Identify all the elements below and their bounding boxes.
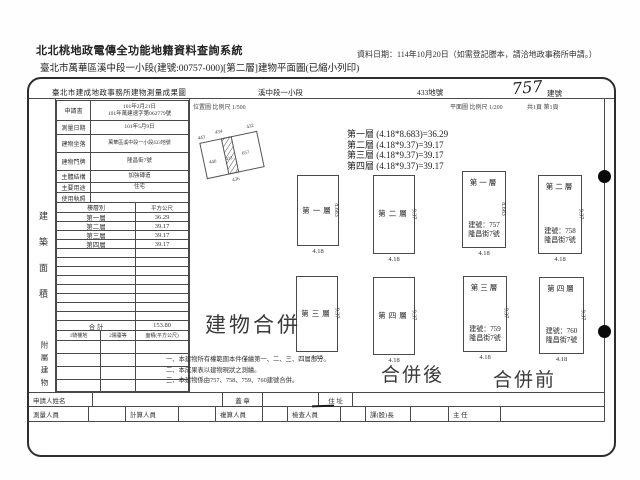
floor-plan-before-760: 第四層 建號：760 隆昌街7號 9.37 4.18 <box>539 277 584 354</box>
data-date-note: 資料日期：114年10月20日（如需登記謄本，請洽地政事務所申請。） <box>357 49 597 60</box>
info-value: 萬華區溪中段一小段433地號 <box>91 135 188 152</box>
plan-side-dim: 8.683 <box>332 203 338 217</box>
floor-name: 第一層 <box>57 213 136 221</box>
floor-row: 第四層 39.17 <box>57 240 188 249</box>
land-section-name: 溪中段一小段 <box>258 87 303 98</box>
area-calculations: 第一層 (4.18*8.683)=36.29 第二層 (4.18*9.37)=3… <box>347 129 448 171</box>
col-floor-header: 樓層別 <box>57 203 136 212</box>
seal-label: 蓋 章 <box>223 393 263 406</box>
plan-address: 隆昌街7號 <box>539 235 581 245</box>
staff-blank <box>89 407 126 421</box>
calc-line: 第三層 (4.18*9.37)=39.17 <box>347 150 448 161</box>
calc-line: 第四層 (4.18*9.37)=39.17 <box>347 161 448 172</box>
document-subtitle: 臺北市萬華區溪中段一小段(建號:00757-000)[第二層]建物平面圖(已縮小… <box>40 60 359 74</box>
floor-row-empty <box>57 303 188 312</box>
sketch-parcel-label: 432 <box>246 124 255 131</box>
annex-col: 面積(平方公尺) <box>136 331 188 340</box>
plan-side-dim: 9.37 <box>410 310 416 321</box>
info-label: 建物門牌 <box>57 153 91 170</box>
floor-name: 第二層 <box>57 222 136 230</box>
info-row: 建物坐落 萬華區溪中段一小段433地號 <box>57 135 188 153</box>
floor-row-empty <box>57 312 188 321</box>
plan-floor-label: 第二層 <box>374 208 414 219</box>
page-count: 共1頁 第1頁 <box>527 102 559 111</box>
staff-blank <box>179 407 216 421</box>
info-row: 主體結構 加強磚造 <box>57 171 188 183</box>
info-value: 隆昌街7號 <box>91 153 188 170</box>
plan-width-dim: 4.18 <box>463 250 505 257</box>
plan-floor-label: 第二層 <box>539 181 581 192</box>
annex-col: 2陽臺等 <box>101 331 136 340</box>
floor-name: 第三層 <box>57 231 136 239</box>
sketch-parcel-label: 436 <box>232 177 241 184</box>
sketch-parcel-label: 443 <box>197 135 206 142</box>
calc-line: 第一層 (4.18*8.683)=36.29 <box>347 129 448 140</box>
sketch-parcel-label: 434 <box>215 129 224 136</box>
floor-row-empty <box>57 249 188 258</box>
annex-col: 1騎樓地 <box>57 331 101 340</box>
info-row: 申請書 101年2月21日 101年萬建速字第062779號 <box>57 101 188 121</box>
staff-label: 計算人員 <box>126 407 179 421</box>
floor-row-empty <box>57 267 188 276</box>
location-scale-note: 位置圖 比例尺 1/500 <box>193 102 246 111</box>
floor-area: 39.17 <box>136 231 188 239</box>
note-line: 一、本建物所有權範圍本件僅繪第一、二、三、四層部分。 <box>166 355 384 366</box>
vertical-label-annex: 附屬建物 <box>39 341 50 391</box>
form-right-line <box>604 98 605 422</box>
floor-plan-after-1: 第一層 8.683 4.18 <box>297 175 339 246</box>
note-line: 三、本建物係由757、758、759、760建號合併。 <box>166 376 384 387</box>
col-area-header: 平方公尺 <box>136 203 188 212</box>
annex-header-row: 1騎樓地 2陽臺等 面積(平方公尺) <box>57 331 188 341</box>
punch-hole <box>598 325 611 338</box>
floor-plan-before-757: 第一層 建號：757 隆昌街7號 8.683 4.18 <box>462 171 506 248</box>
note-line: 二、本成果表以建物現狀之測繪。 <box>166 366 384 377</box>
staff-blank <box>411 407 449 421</box>
info-label: 建物坐落 <box>57 135 91 152</box>
floor-row: 第二層 39.17 <box>57 222 188 231</box>
info-label: 主要用途 <box>57 183 91 192</box>
sketch-parcel-label: 657 <box>242 150 251 157</box>
plan-floor-label: 第四層 <box>540 283 583 294</box>
floor-name: 第四層 <box>57 240 136 248</box>
staff-label: 測量人員 <box>29 407 89 421</box>
plan-scale-note: 平面圖 比例尺 1/200 <box>450 102 503 111</box>
floor-plan-after-4: 第四層 9.37 4.18 <box>373 277 415 355</box>
plan-side-dim: 9.37 <box>502 308 508 319</box>
calc-line: 第二層 (4.18*9.37)=39.17 <box>347 140 448 151</box>
applicant-blank <box>93 393 223 406</box>
survey-notes: 一、本建物所有權範圍本件僅繪第一、二、三、四層部分。 二、本成果表以建物現狀之測… <box>166 355 384 387</box>
staff-blank <box>263 407 288 421</box>
plan-floor-label: 第三層 <box>297 308 337 319</box>
floor-plan-after-2: 第二層 9.37 4.18 <box>373 175 415 254</box>
info-row: 測量日期 101年5月9日 <box>57 121 188 135</box>
header-divider <box>29 98 614 99</box>
after-merge-label: 合併後 <box>381 360 444 387</box>
info-label: 申請書 <box>57 101 91 120</box>
info-table: 申請書 101年2月21日 101年萬建速字第062779號 測量日期 101年… <box>56 100 189 204</box>
parcel-number: 433地號 <box>417 87 443 98</box>
floor-row-empty <box>57 276 188 285</box>
floor-row-empty <box>57 285 188 294</box>
floor-area: 39.17 <box>136 222 188 230</box>
plan-address: 隆昌街7號 <box>464 333 506 343</box>
merge-title: 建物合併 <box>205 309 301 339</box>
plan-side-dim: 8.683 <box>499 202 505 216</box>
plan-side-dim: 9.37 <box>577 208 583 219</box>
staff-label: 檢查人員 <box>288 407 341 421</box>
plan-side-dim: 9.37 <box>333 308 339 319</box>
land-registry-printout: 北北桃地政電傳全功能地籍資料查詢系統 資料日期：114年10月20日（如需登記謄… <box>0 0 640 480</box>
floor-plan-after-3: 第三層 9.37 4.18 <box>296 276 338 352</box>
floor-row-empty <box>57 294 188 303</box>
applicant-label: 申請人姓名 <box>29 393 93 406</box>
floor-row: 第三層 39.17 <box>57 231 188 240</box>
sketch-parcel-label: 440 <box>209 159 218 166</box>
office-title: 臺北市建成地政事務所建物測量成果圖 <box>52 87 186 98</box>
vertical-label-building-area: 建築面積 <box>37 211 50 315</box>
plan-floor-label: 第四層 <box>374 310 414 321</box>
scanned-survey-document: 臺北市建成地政事務所建物測量成果圖 溪中段一小段 433地號 757 建號 位置… <box>27 77 616 457</box>
plan-width-dim: 4.18 <box>374 256 414 263</box>
floor-plan-before-758: 第二層 建號：758 隆昌街7號 9.37 4.18 <box>538 175 582 254</box>
floor-total-row: 合 計 153.80 <box>57 321 188 331</box>
plan-width-dim: 4.18 <box>540 356 583 363</box>
floor-table-header: 樓層別 平方公尺 <box>57 203 188 213</box>
plan-floor-label: 第一層 <box>463 177 505 188</box>
plan-floor-label: 第三層 <box>464 282 506 293</box>
info-row: 建物門牌 隆昌街7號 <box>57 153 188 171</box>
staff-label: 複算人員 <box>216 407 263 421</box>
location-sketch: 443 434 432 440 433 657 436 <box>189 119 275 191</box>
info-value: 加強磚造 <box>91 171 188 182</box>
building-number-handwritten: 757 <box>511 77 543 99</box>
plan-width-dim: 4.18 <box>464 354 506 361</box>
plan-side-dim: 9.37 <box>410 208 416 219</box>
info-label: 測量日期 <box>57 121 91 134</box>
before-merge-label: 合併前 <box>493 365 556 392</box>
address-blank <box>353 393 604 406</box>
plan-width-dim: 4.18 <box>298 248 338 255</box>
plan-width-dim: 4.18 <box>539 256 581 263</box>
info-value-line: 101年萬建速字第062779號 <box>108 111 171 118</box>
staff-label: 主 任 <box>449 407 501 421</box>
staff-blank <box>501 407 604 421</box>
floor-plan-before-759: 第三層 建號：759 隆昌街7號 9.37 4.18 <box>463 276 507 352</box>
info-value: 101年2月21日 101年萬建速字第062779號 <box>91 101 188 120</box>
footer-staff-row: 測量人員 計算人員 複算人員 檢查人員 課(股)長 主 任 <box>29 407 604 422</box>
floor-area: 36.29 <box>136 213 188 221</box>
info-value: 101年5月9日 <box>91 121 188 134</box>
plan-address: 隆昌街7號 <box>463 229 505 239</box>
seal-blank <box>263 393 319 406</box>
annex-row-empty <box>57 341 188 354</box>
staff-blank <box>341 407 366 421</box>
punch-hole <box>598 170 611 183</box>
floor-row: 第一層 36.29 <box>57 213 188 222</box>
floor-area: 39.17 <box>136 240 188 248</box>
staff-label: 課(股)長 <box>366 407 411 421</box>
info-value-line: 101年2月21日 <box>123 104 156 111</box>
floor-row-empty <box>57 258 188 267</box>
info-value: 住宅 <box>91 183 188 192</box>
info-row: 主要用途 住宅 <box>57 183 188 193</box>
total-label: 合 計 <box>57 321 136 330</box>
plan-address: 隆昌街7號 <box>540 335 583 345</box>
system-title: 北北桃地政電傳全功能地籍資料查詢系統 <box>36 42 243 58</box>
plan-side-dim: 9.37 <box>579 310 585 321</box>
total-value: 153.80 <box>136 321 188 330</box>
info-label: 主體結構 <box>57 171 91 182</box>
